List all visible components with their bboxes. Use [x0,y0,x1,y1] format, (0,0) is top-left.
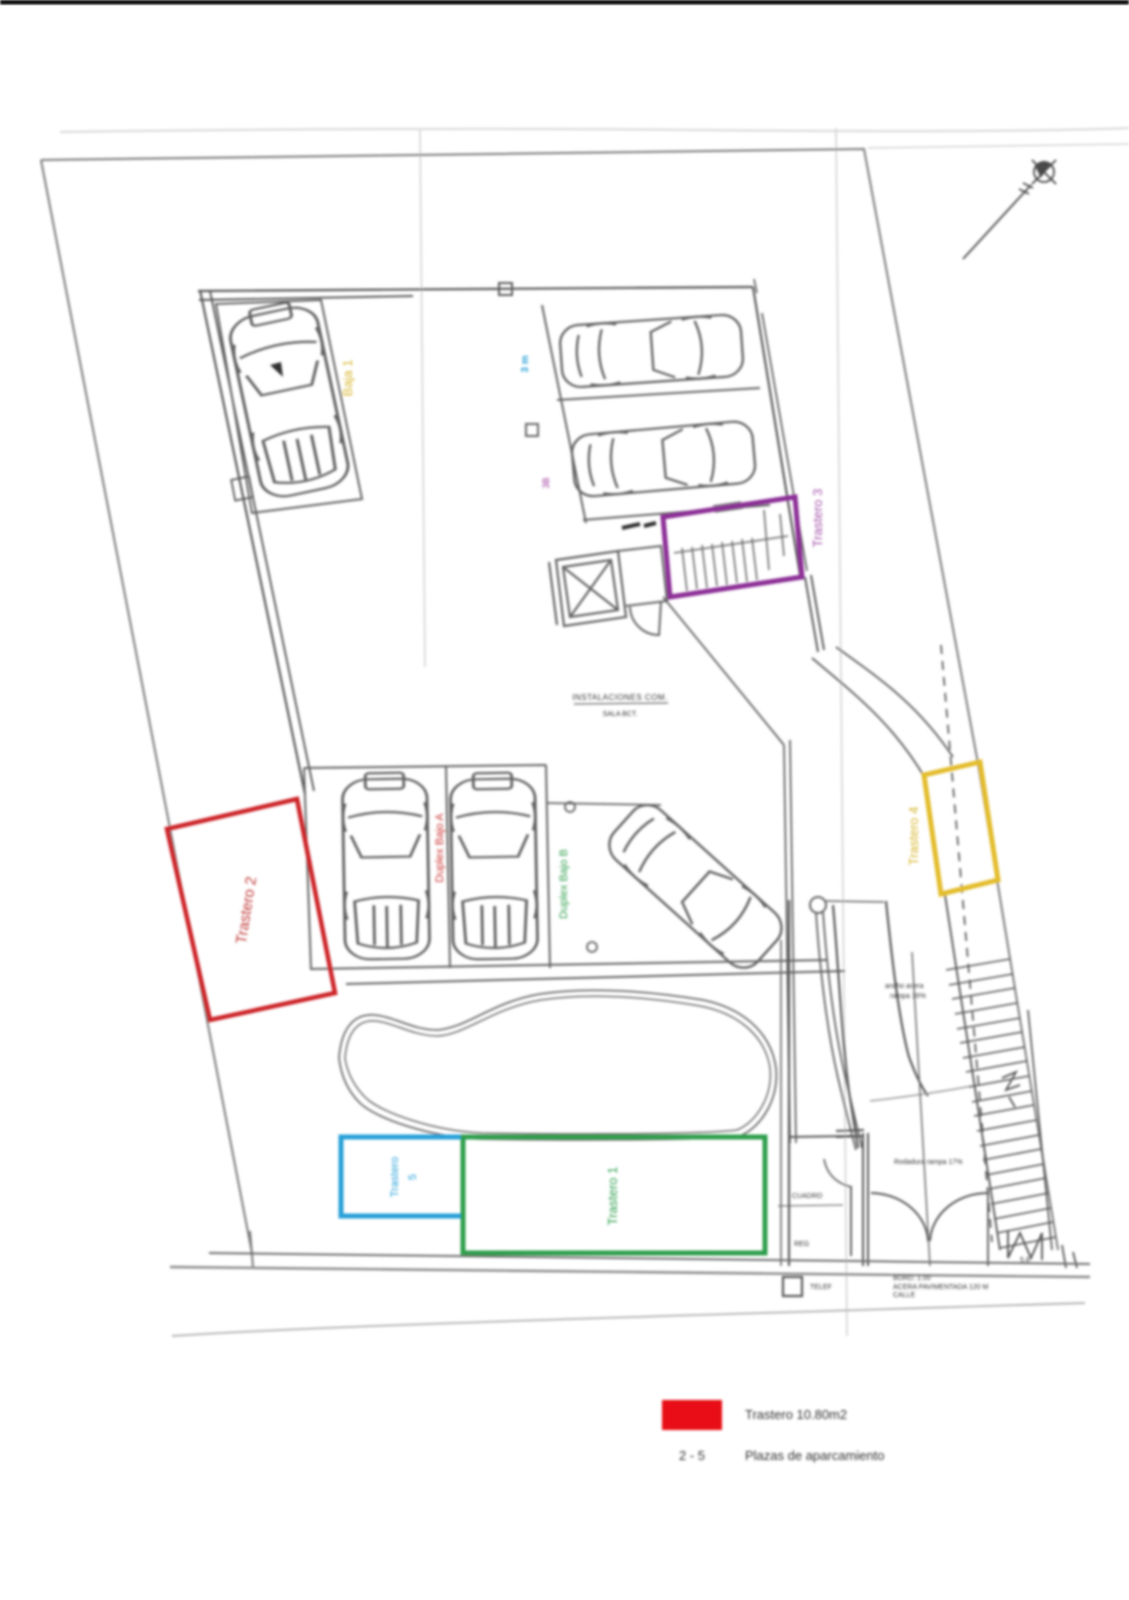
svg-text:Baja 1: Baja 1 [340,360,355,397]
svg-text:TELEF: TELEF [810,1284,832,1291]
svg-text:3B: 3B [541,477,551,488]
svg-text:Duplex Bajo B: Duplex Bajo B [558,849,570,919]
svg-text:5: 5 [407,1174,419,1180]
svg-text:REG: REG [794,1241,809,1248]
svg-text:2 - 5: 2 - 5 [679,1448,705,1463]
svg-text:INSTALACIONES COM.: INSTALACIONES COM. [572,693,668,702]
svg-text:Duplex Bajo A: Duplex Bajo A [434,813,446,883]
svg-text:BORD. 1.00: BORD. 1.00 [893,1275,931,1282]
svg-text:CUADRO: CUADRO [792,1193,823,1200]
svg-text:Trastero 1: Trastero 1 [605,1167,620,1226]
svg-text:CALLE: CALLE [893,1292,916,1299]
svg-text:ancho acera: ancho acera [885,983,924,990]
svg-text:Trastero 3: Trastero 3 [810,489,825,548]
svg-text:rampa 16%: rampa 16% [890,993,926,1000]
svg-text:ACERA PAVIMENTADA 120 M: ACERA PAVIMENTADA 120 M [893,1284,988,1291]
svg-text:Trastero 4: Trastero 4 [906,807,921,866]
svg-text:Rodadura rampa 17%: Rodadura rampa 17% [894,1159,963,1166]
svg-text:Trastero: Trastero [389,1157,401,1198]
svg-text:Trastero 10.80m2: Trastero 10.80m2 [745,1407,847,1422]
svg-text:SALA BCT.: SALA BCT. [603,711,638,718]
svg-text:Plazas de aparcamiento: Plazas de aparcamiento [745,1448,884,1463]
svg-text:3 m: 3 m [520,355,531,372]
